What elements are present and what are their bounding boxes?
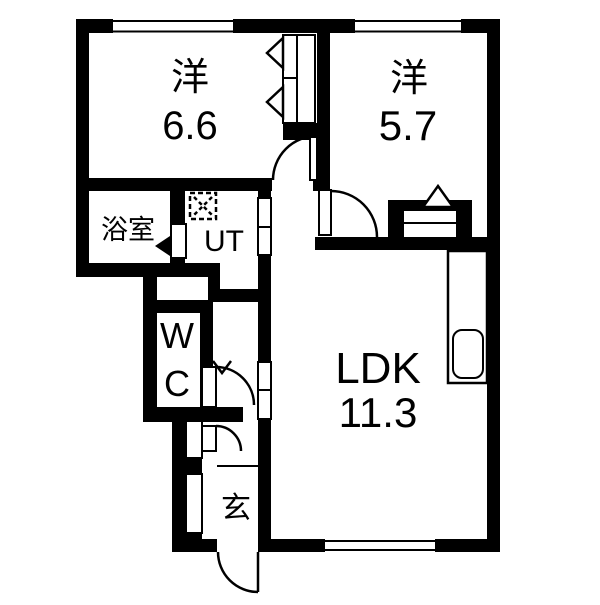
bedroom2-door-arc xyxy=(331,191,377,237)
closet1-folding-triangle-icon xyxy=(267,38,283,68)
floor-plan-canvas: 洋 6.6 洋 5.7 浴室 UT W C LDK 11.3 玄 xyxy=(0,0,600,600)
bathroom-label: 浴室 xyxy=(101,215,155,245)
washing-machine-icon xyxy=(190,193,216,219)
front-door-arc xyxy=(218,552,258,592)
window-top-bedroom2 xyxy=(355,19,461,33)
utility-label: UT xyxy=(204,225,244,258)
wall-right xyxy=(487,19,500,552)
bedroom1-label: 洋 xyxy=(171,57,209,99)
bedroom2-area: 5.7 xyxy=(379,102,437,149)
closet1-folding-triangle-icon xyxy=(267,87,283,117)
wall-wc-left-upper xyxy=(143,277,157,302)
washroom-door xyxy=(202,361,254,407)
wall-wc-bottom-band xyxy=(143,407,243,422)
ldk-hall-door-lower xyxy=(258,362,271,419)
wc-label-c: C xyxy=(164,363,190,404)
hall-door-arc xyxy=(216,426,241,451)
wall-left xyxy=(76,19,89,277)
wall-entrance-left xyxy=(172,420,186,552)
bedroom1-door xyxy=(273,136,317,180)
bedroom2-label: 洋 xyxy=(390,58,428,100)
closet2-folding-triangle-icon xyxy=(423,186,453,207)
bedroom2-door xyxy=(319,190,377,237)
closet-bedroom2 xyxy=(388,186,472,240)
entrance-cabinets xyxy=(186,421,202,533)
hall-door xyxy=(202,426,241,451)
entrance-label: 玄 xyxy=(221,492,251,525)
bathroom-door xyxy=(155,224,186,258)
wc-label-w: W xyxy=(160,315,194,356)
front-door xyxy=(218,552,258,592)
bathroom-door-triangle-icon xyxy=(155,236,170,256)
wall-corridor-top xyxy=(218,289,258,302)
window-bottom-ldk xyxy=(325,539,435,552)
bedroom1-area: 6.6 xyxy=(162,104,218,148)
floor-plan-svg: 洋 6.6 洋 5.7 浴室 UT W C LDK 11.3 玄 xyxy=(0,0,600,600)
wall-between-bedrooms xyxy=(317,33,330,191)
wall-bath-bottom xyxy=(76,263,220,277)
ldk-label: LDK xyxy=(335,344,421,393)
window-top-bedroom1 xyxy=(113,19,233,33)
kitchen-sink-icon xyxy=(453,330,483,378)
kitchen-counter xyxy=(448,251,487,383)
closet-bedroom1 xyxy=(267,35,315,123)
entrance-door-opening xyxy=(217,539,258,552)
bedroom1-door-opening xyxy=(272,178,313,191)
ldk-area: 11.3 xyxy=(339,389,418,436)
ldk-hall-door-upper xyxy=(258,198,271,255)
